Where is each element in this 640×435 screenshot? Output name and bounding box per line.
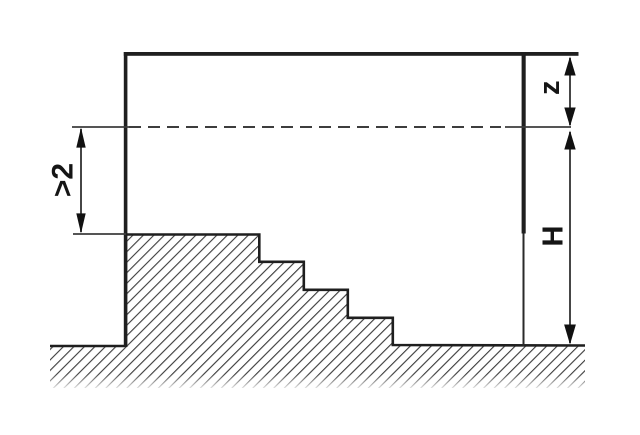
svg-text:H: H xyxy=(538,226,570,247)
svg-text:z: z xyxy=(534,81,566,96)
svg-text:>2: >2 xyxy=(47,163,80,197)
